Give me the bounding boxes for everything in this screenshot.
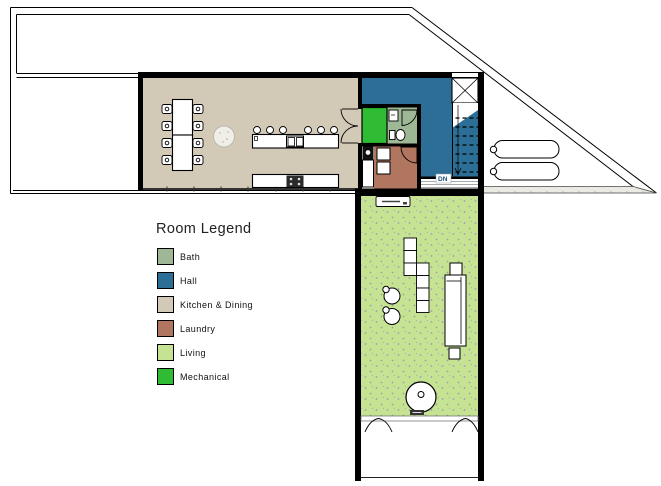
legend-label-bath: Bath — [180, 252, 200, 262]
room-legend: Room Legend Bath Hall Kitchen & Dining L… — [157, 221, 253, 392]
legend-swatch-bath — [157, 248, 174, 265]
legend-swatch-laundry — [157, 320, 174, 337]
stairs-down-label: DN — [436, 174, 451, 183]
walkway — [483, 187, 657, 194]
toilet — [390, 130, 406, 141]
media-console — [376, 197, 410, 207]
legend-swatch-mechanical — [157, 368, 174, 385]
dining-table — [173, 100, 193, 171]
legend-item-mechanical: Mechanical — [157, 368, 253, 385]
legend-item-living: Living — [157, 344, 253, 361]
bath-vanity — [389, 110, 398, 121]
faucet — [255, 137, 258, 141]
hall-bottom-wall — [420, 177, 483, 180]
legend-swatch-hall — [157, 272, 174, 289]
cooktop — [287, 176, 304, 188]
legend-label-laundry: Laundry — [180, 324, 215, 334]
legend-item-laundry: Laundry — [157, 320, 253, 337]
legend-label-living: Living — [180, 348, 206, 358]
sofa — [445, 263, 466, 359]
floor-plan-drawing: DN — [0, 0, 661, 486]
legend-label-hall: Hall — [180, 276, 197, 286]
room-legend-title: Room Legend — [156, 221, 253, 237]
propane-tanks — [490, 141, 559, 181]
rooms-mid-wall — [358, 144, 421, 147]
legend-swatch-living — [157, 344, 174, 361]
legend-swatch-kitchen-dining — [157, 296, 174, 313]
legend-label-kitchen-dining: Kitchen & Dining — [180, 300, 253, 310]
stair-landing — [421, 182, 483, 188]
kitchen-island — [253, 135, 339, 149]
svg-text:DN: DN — [438, 176, 448, 183]
legend-item-hall: Hall — [157, 272, 253, 289]
floor-plan-view: DN — [0, 0, 661, 486]
wood-stove — [406, 382, 436, 412]
side-table-top — [450, 263, 462, 275]
utility-sink — [363, 147, 374, 188]
stair-shaft — [452, 78, 478, 103]
legend-item-bath: Bath — [157, 248, 253, 265]
bath-hall-wall — [417, 104, 421, 189]
side-table-bottom — [449, 348, 460, 359]
sink — [287, 136, 304, 147]
room-mechanical — [362, 108, 387, 144]
cooktop-counter — [253, 175, 339, 188]
legend-item-kitchen-dining: Kitchen & Dining — [157, 296, 253, 313]
legend-label-mechanical: Mechanical — [180, 372, 230, 382]
round-table — [214, 126, 235, 147]
